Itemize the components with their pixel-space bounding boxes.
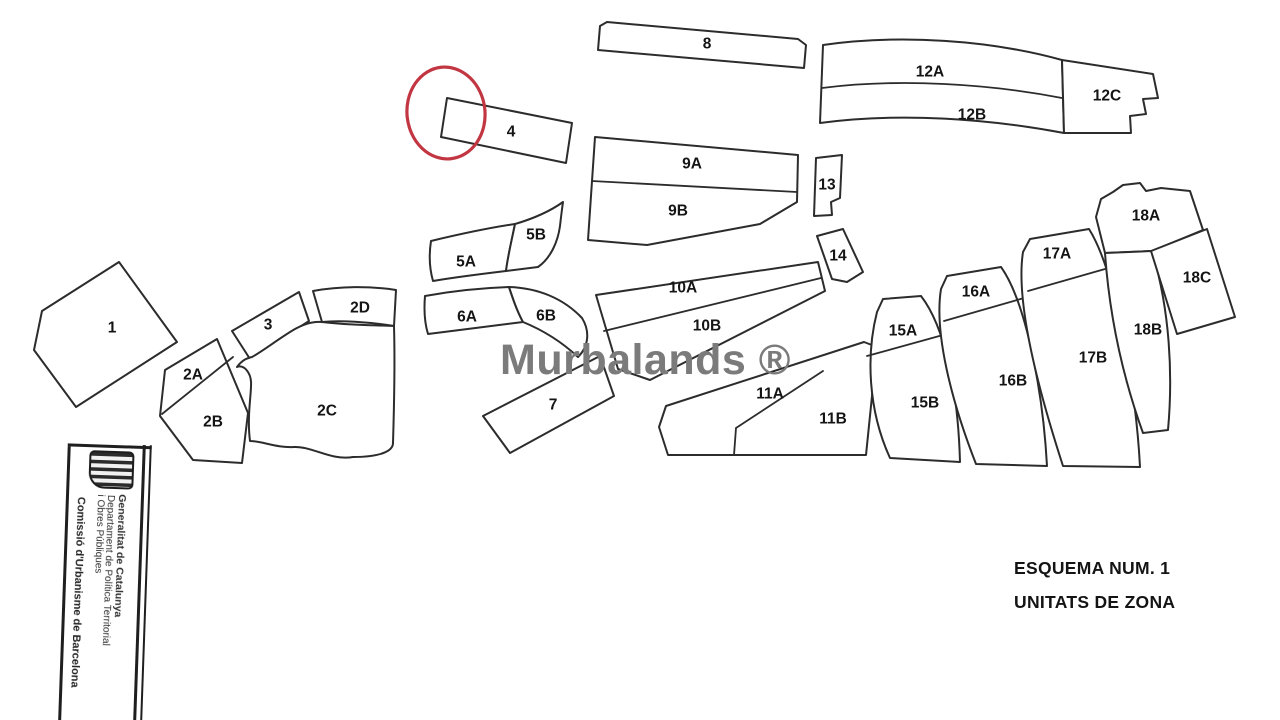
zone-12AB-shape bbox=[820, 40, 1064, 133]
zone-2A-label: 2A bbox=[183, 367, 203, 384]
zone-16A-label: 16A bbox=[962, 284, 990, 301]
zone-18A-label: 18A bbox=[1132, 208, 1160, 225]
zone-5B-label: 5B bbox=[526, 227, 546, 244]
generalitat-shield-icon bbox=[88, 450, 134, 490]
zone-16B-label: 16B bbox=[999, 373, 1027, 390]
scheme-title-block: ESQUEMA NUM. 1 UNITATS DE ZONA bbox=[1014, 551, 1175, 619]
zone-15B-label: 15B bbox=[911, 395, 939, 412]
stamp-border-right bbox=[132, 445, 146, 720]
zone-5A-shape bbox=[430, 224, 515, 281]
zone-15A-label: 15A bbox=[889, 323, 917, 340]
scheme-title-line2: UNITATS DE ZONA bbox=[1014, 585, 1175, 619]
zone-6B-label: 6B bbox=[536, 308, 556, 325]
zone-10A-label: 10A bbox=[669, 280, 697, 297]
zone-18C-label: 18C bbox=[1183, 270, 1211, 287]
stamp-commission-text: Comissió d'Urbanisme de Barcelona bbox=[68, 497, 87, 688]
zone-2AB-shape bbox=[160, 339, 248, 463]
watermark-text: Murbalands ® bbox=[500, 336, 791, 385]
zone-17A-label: 17A bbox=[1043, 246, 1071, 263]
stamp-border-top bbox=[68, 443, 152, 448]
zone-12C-label: 12C bbox=[1093, 88, 1121, 105]
official-stamp-strip: Generalitat de Catalunya Departament de … bbox=[47, 438, 158, 720]
zone-2C-label: 2C bbox=[317, 403, 337, 420]
zone-17B-label: 17B bbox=[1079, 350, 1107, 367]
zone-6A-label: 6A bbox=[457, 309, 477, 326]
zone-2B-label: 2B bbox=[203, 414, 223, 431]
zone-14-label: 14 bbox=[829, 248, 847, 265]
zone-18B-label: 18B bbox=[1134, 322, 1162, 339]
zone-12A-label: 12A bbox=[916, 64, 944, 81]
zone-5A-label: 5A bbox=[456, 254, 476, 271]
zone-9B-label: 9B bbox=[668, 203, 688, 220]
zone-8-label: 8 bbox=[703, 36, 712, 53]
zone-2D-label: 2D bbox=[350, 300, 370, 317]
zone-13-label: 13 bbox=[818, 177, 836, 194]
zone-4-label: 4 bbox=[507, 124, 516, 141]
zone-11B-label: 11B bbox=[819, 411, 847, 428]
zone-12B-label: 12B bbox=[958, 107, 986, 124]
zone-1-label: 1 bbox=[108, 320, 117, 337]
zone-1-shape bbox=[34, 262, 177, 407]
zone-7-label: 7 bbox=[549, 397, 558, 414]
zoning-scheme-page: 1 2A 2B 2C 2D 3 4 5A 5B 6A 6B 7 8 9A 9B … bbox=[0, 0, 1280, 720]
zone-3-label: 3 bbox=[264, 317, 273, 334]
zone-9A-label: 9A bbox=[682, 156, 702, 173]
zone-10B-label: 10B bbox=[693, 318, 721, 335]
zone-11A-label: 11A bbox=[756, 386, 784, 403]
scheme-title-line1: ESQUEMA NUM. 1 bbox=[1014, 551, 1175, 585]
